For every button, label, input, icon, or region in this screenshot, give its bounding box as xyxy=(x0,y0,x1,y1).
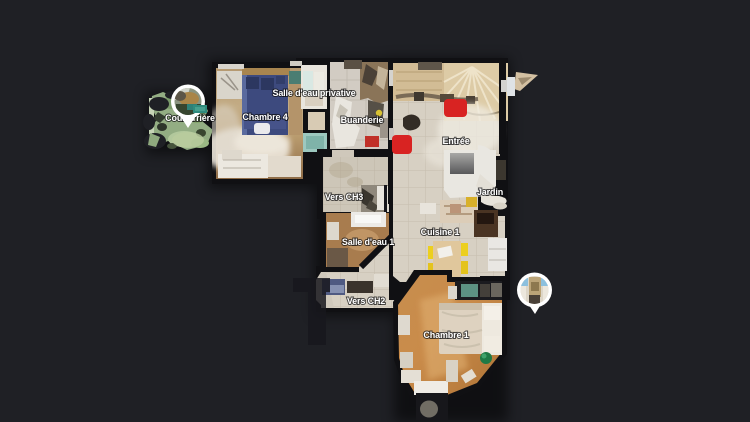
svg-text:Salle d'eau privative: Salle d'eau privative xyxy=(272,88,355,98)
svg-text:Entrée: Entrée xyxy=(442,136,469,146)
svg-text:Salle d'eau 1: Salle d'eau 1 xyxy=(342,237,394,247)
svg-text:Chambre 1: Chambre 1 xyxy=(423,330,468,340)
svg-text:Jardin: Jardin xyxy=(477,187,503,197)
svg-text:Vers CH2: Vers CH2 xyxy=(347,296,385,306)
svg-text:Buanderie: Buanderie xyxy=(341,115,384,125)
svg-text:Cuisine 1: Cuisine 1 xyxy=(421,227,460,237)
svg-text:Vers CH3: Vers CH3 xyxy=(325,192,363,202)
svg-text:Chambre 4: Chambre 4 xyxy=(242,112,287,122)
